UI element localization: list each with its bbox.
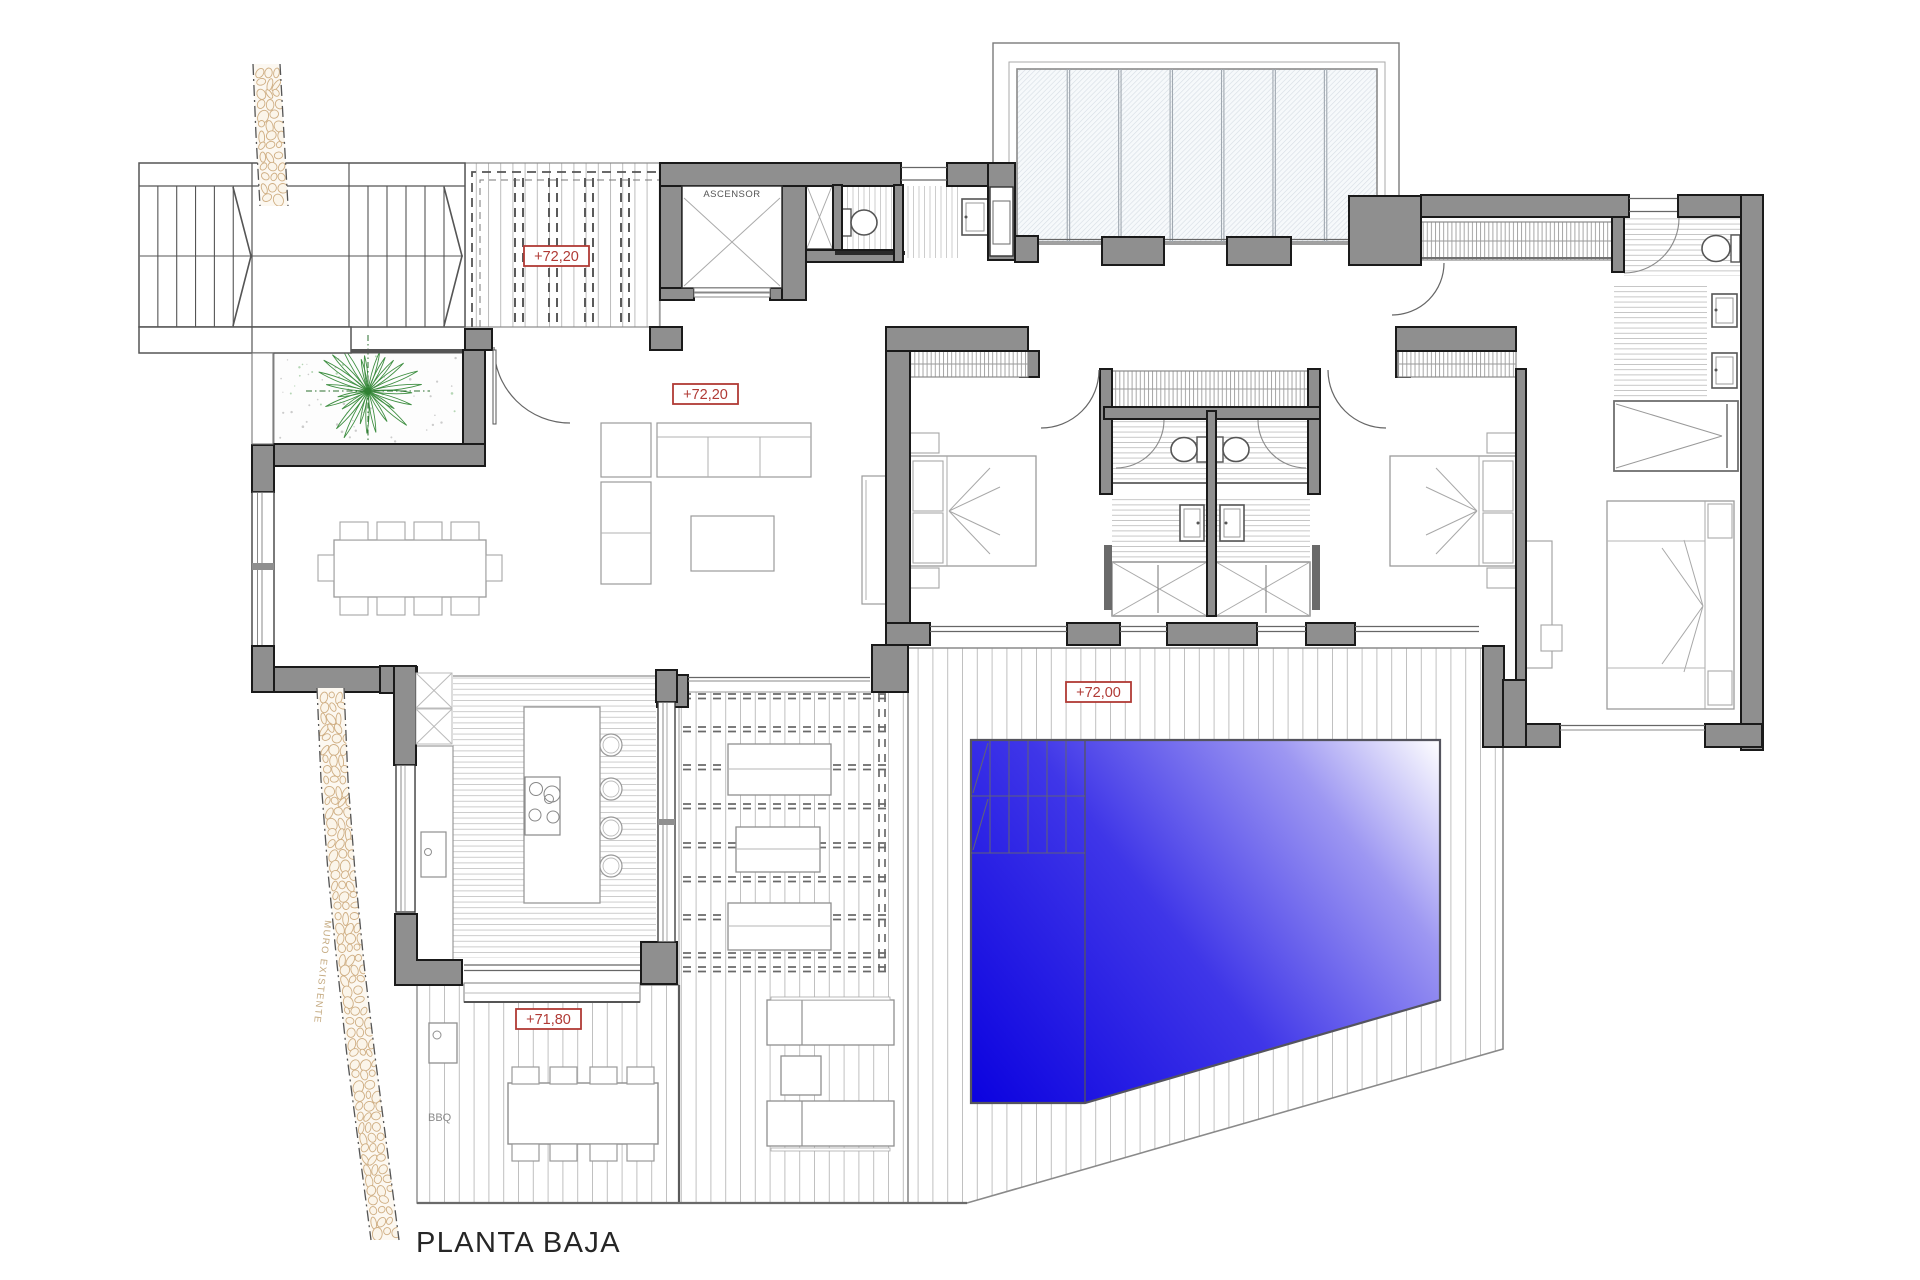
svg-text:BBQ: BBQ (428, 1112, 452, 1124)
svg-text:+72,20: +72,20 (683, 387, 728, 403)
svg-text:PLANTA BAJA: PLANTA BAJA (416, 1227, 621, 1259)
svg-text:ASCENSOR: ASCENSOR (703, 189, 760, 200)
svg-text:+71,80: +71,80 (526, 1012, 571, 1028)
svg-text:+72,20: +72,20 (534, 249, 579, 265)
svg-text:+72,00: +72,00 (1076, 685, 1121, 701)
